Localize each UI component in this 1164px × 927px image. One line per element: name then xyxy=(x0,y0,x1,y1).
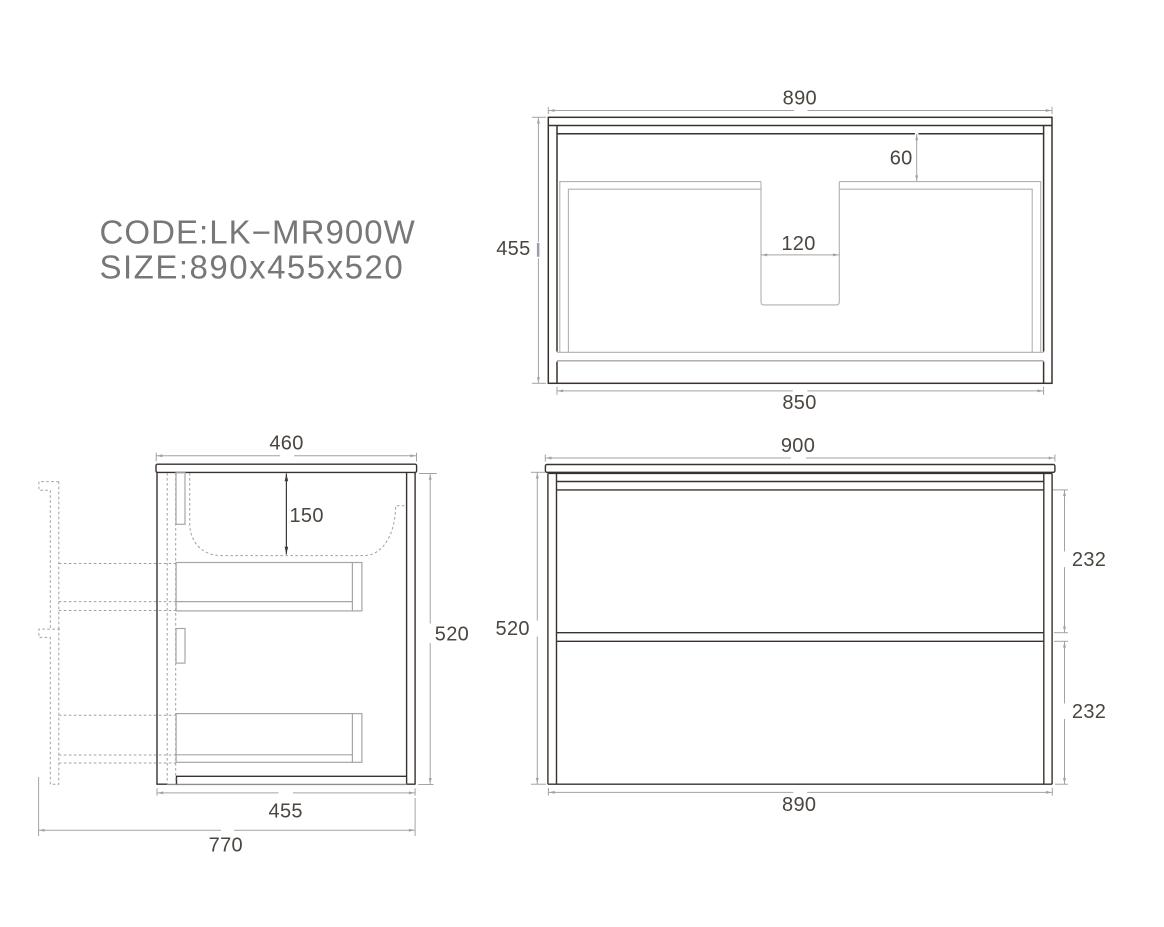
svg-text:150: 150 xyxy=(290,505,324,527)
svg-text:120: 120 xyxy=(781,233,815,255)
svg-text:770: 770 xyxy=(209,834,243,856)
svg-text:890: 890 xyxy=(783,88,817,110)
svg-text:SIZE:890x455x520: SIZE:890x455x520 xyxy=(100,249,405,286)
svg-text:460: 460 xyxy=(269,432,303,454)
svg-text:232: 232 xyxy=(1072,549,1106,571)
svg-text:900: 900 xyxy=(781,435,815,457)
svg-text:520: 520 xyxy=(435,623,469,645)
svg-text:890: 890 xyxy=(782,794,816,816)
svg-text:60: 60 xyxy=(890,147,913,169)
svg-text:455: 455 xyxy=(269,801,303,823)
svg-text:232: 232 xyxy=(1072,701,1106,723)
svg-text:520: 520 xyxy=(496,618,530,640)
svg-text:850: 850 xyxy=(782,392,816,414)
svg-text:CODE:LK−MR900W: CODE:LK−MR900W xyxy=(100,214,416,251)
svg-text:455: 455 xyxy=(496,238,530,260)
